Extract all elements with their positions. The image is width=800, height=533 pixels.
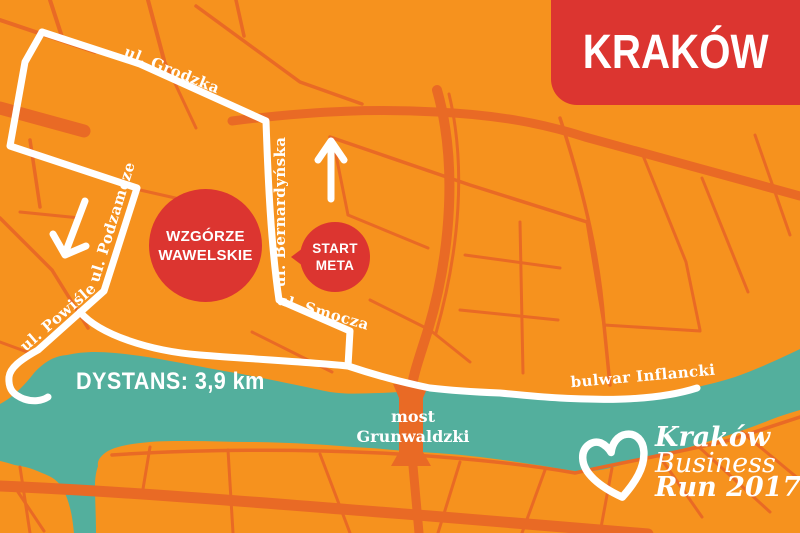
start-meta-line2: META <box>316 257 354 274</box>
street-label-bernardynska: ul. Bernardyńska <box>271 137 289 288</box>
city-banner: KRAKÓW <box>551 0 800 105</box>
start-meta-marker: START META <box>300 222 370 292</box>
wawel-marker-line1: WZGÓRZE <box>166 227 245 246</box>
wawel-hill-marker: WZGÓRZE WAWELSKIE <box>149 189 262 302</box>
bridge-label-line2: Grunwaldzki <box>356 427 469 447</box>
route-arrow-down-left-icon <box>53 201 86 255</box>
logo-run-year-text: Run 2017 <box>655 472 800 503</box>
heart-icon <box>576 422 654 510</box>
event-logo: Kraków Business Run 2017 <box>576 416 800 526</box>
wawel-marker-line2: WAWELSKIE <box>158 246 252 265</box>
city-banner-title: KRAKÓW <box>583 25 769 80</box>
krakow-run-map-poster: ul. Grodzka ul. Podzamcze ul. Powiśle ul… <box>0 0 800 533</box>
start-meta-pointer <box>291 248 303 266</box>
distance-label: DYSTANS: 3,9 km <box>76 368 265 396</box>
start-meta-line1: START <box>312 240 358 257</box>
bridge-label: most Grunwaldzki <box>356 407 469 447</box>
bridge-label-line1: most <box>356 407 469 427</box>
